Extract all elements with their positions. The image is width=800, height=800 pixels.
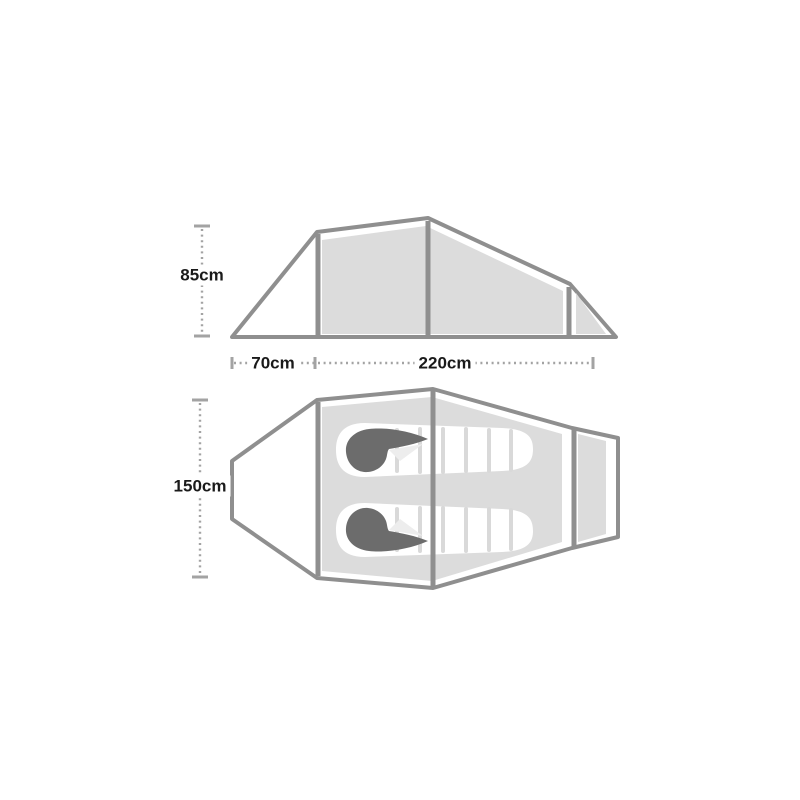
width-dimension-label: 150cm [170, 476, 231, 497]
top-view-rear-vestibule-fill [578, 434, 606, 542]
side-view [232, 218, 616, 337]
diagram-canvas [0, 0, 800, 800]
height-dimension-label: 85cm [176, 265, 227, 286]
tent-dimensions-diagram: 85cm 70cm 220cm 150cm [0, 0, 800, 800]
front-vestibule-length-label: 70cm [247, 353, 298, 374]
side-view-inner-tent-fill [322, 226, 563, 334]
top-view [232, 389, 618, 588]
inner-length-label: 220cm [415, 353, 476, 374]
